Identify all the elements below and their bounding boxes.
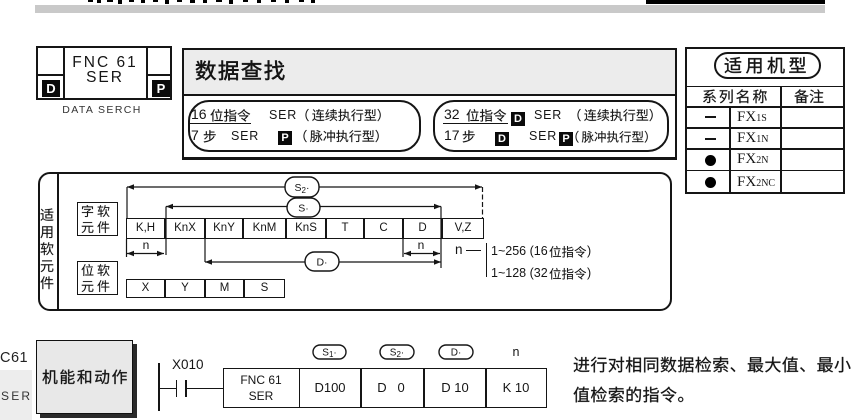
svg-text:S·: S· [298, 202, 309, 214]
svg-text:D·: D· [316, 256, 327, 268]
svg-text:S1·: S1· [322, 348, 336, 360]
svg-text:D·: D· [450, 348, 461, 359]
svg-text:S2·: S2· [389, 348, 403, 360]
